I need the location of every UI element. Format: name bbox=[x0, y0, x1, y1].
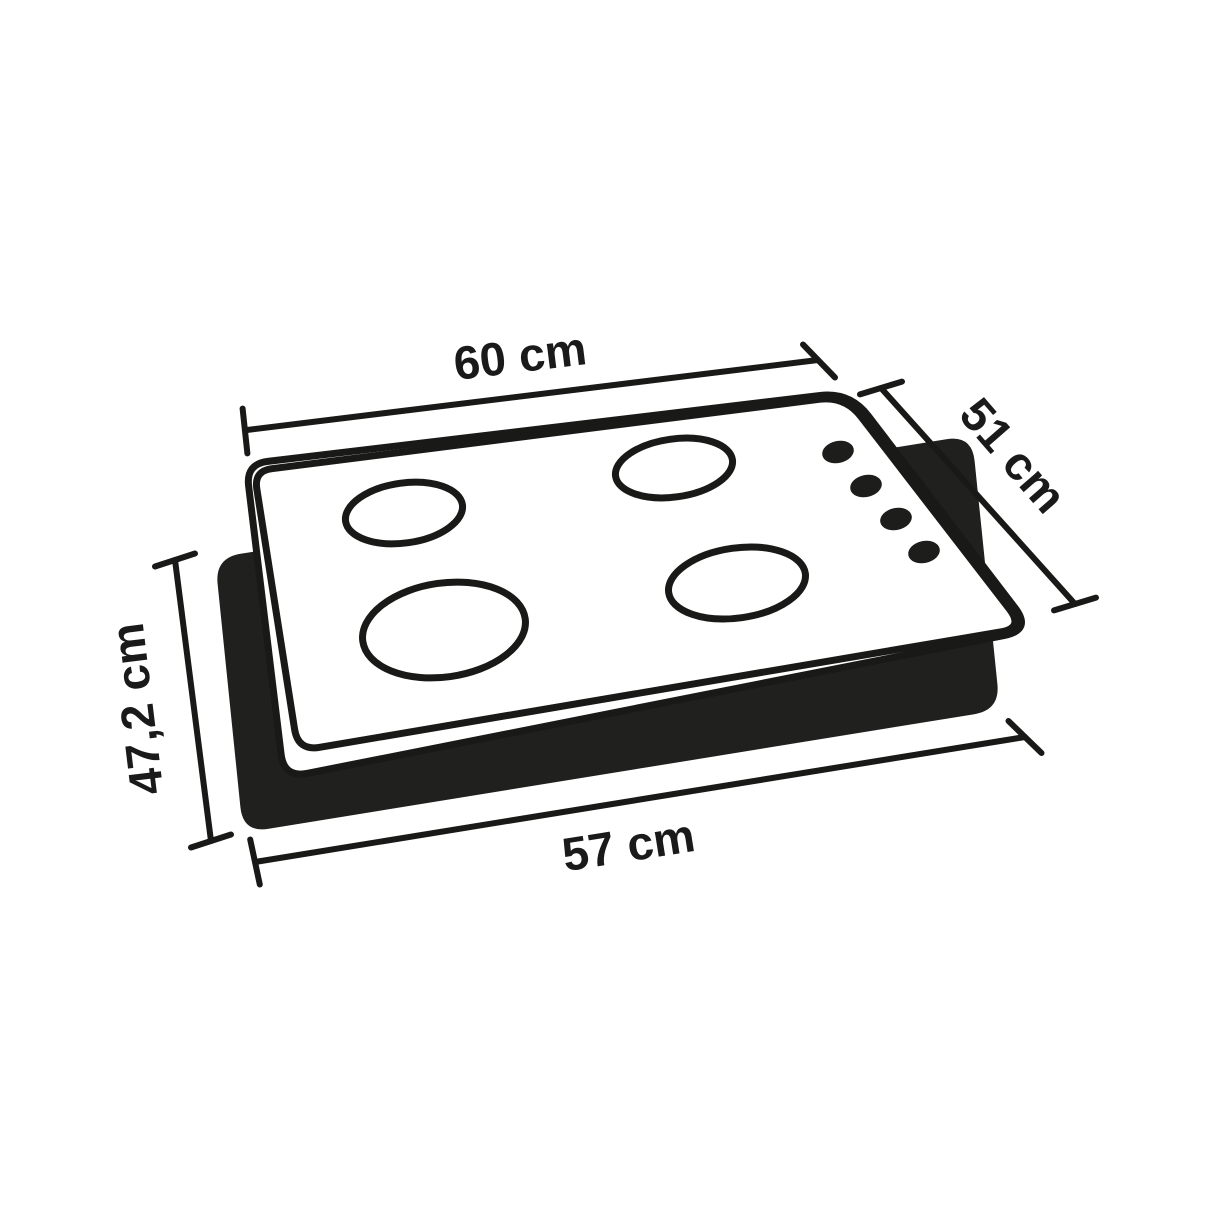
dimension-line-left bbox=[175, 560, 211, 841]
dimension-left-cutout: 47,2 cm bbox=[100, 554, 231, 848]
dimension-label-bottom-cutout: 57 cm bbox=[558, 808, 698, 881]
cooktop-dimension-diagram: 60 cm 51 cm 47,2 cm 57 cm bbox=[0, 0, 1214, 1214]
diagram-canvas: 60 cm 51 cm 47,2 cm 57 cm bbox=[0, 0, 1214, 1214]
dimension-label-left-cutout: 47,2 cm bbox=[100, 620, 174, 798]
dimension-label-top-width: 60 cm bbox=[451, 321, 590, 390]
dimension-tick-top-left bbox=[243, 409, 248, 454]
